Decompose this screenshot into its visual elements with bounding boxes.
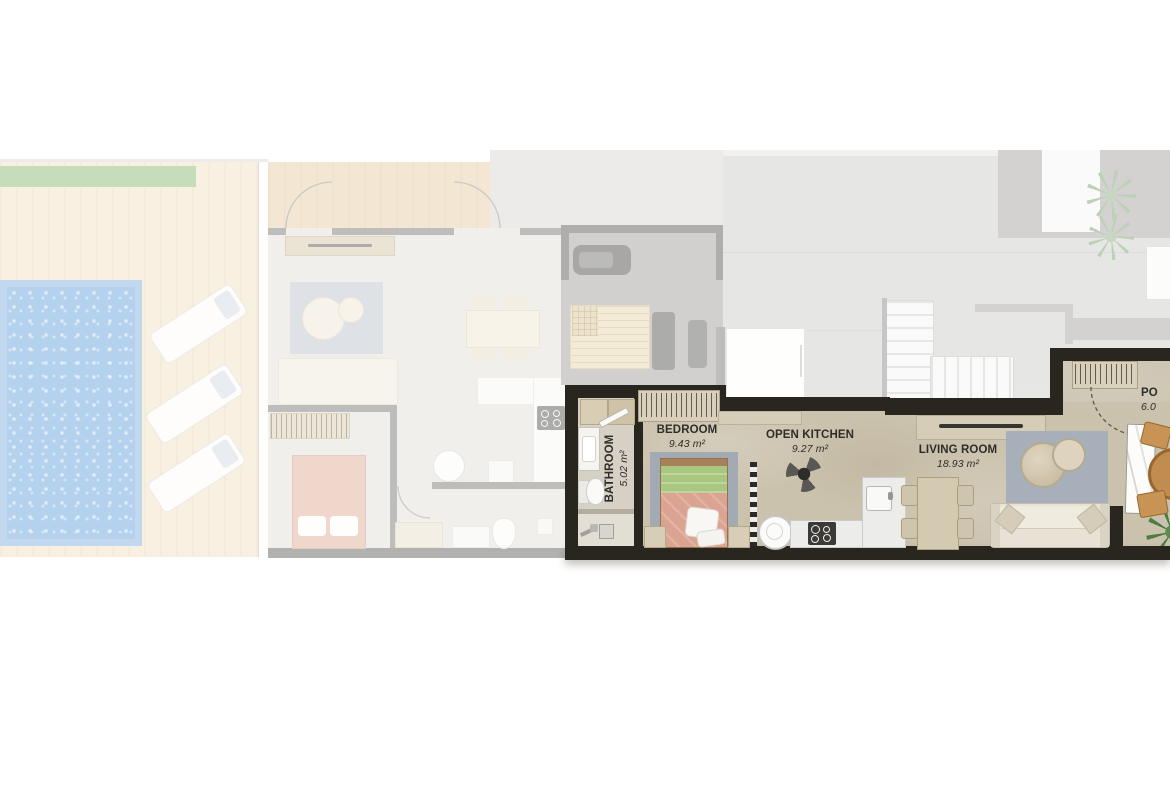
neighbor-wall: [432, 482, 565, 489]
neighbor-wardrobe-symbol: [270, 413, 350, 439]
gym-machine-symbol: [688, 320, 707, 368]
elevator-shaft: [725, 327, 806, 399]
neighbor-chair-symbol: [473, 296, 495, 308]
window-panel: [1146, 246, 1170, 300]
porch-name: PO: [1141, 387, 1170, 401]
chair-symbol: [901, 518, 918, 539]
elevator-door-line: [800, 345, 802, 377]
hanging-clothes: [641, 393, 677, 417]
hanging-clothes: [1075, 364, 1103, 384]
bathroom-area: 5.02 m²: [618, 421, 631, 516]
neighbor-vanity-symbol: [452, 526, 490, 548]
partition-marker: [750, 462, 757, 546]
lounger-pillow: [209, 369, 238, 400]
neighbor-cabinet-symbol: [395, 522, 443, 548]
headboard: [661, 459, 727, 466]
wardrobe-symbol: [638, 390, 720, 422]
kitchen-name: OPEN KITCHEN: [740, 429, 880, 443]
burner: [823, 526, 830, 533]
door-swing-arc: [452, 180, 502, 230]
living-name: LIVING ROOM: [898, 444, 1018, 458]
neighbor-dining-table-symbol: [466, 310, 540, 348]
palm-plant-icon: [1086, 170, 1136, 220]
burner: [811, 535, 819, 543]
burner: [811, 525, 820, 534]
bedroom-name: BEDROOM: [632, 424, 742, 438]
floor-plan: BATHROOM 5.02 m² BEDROOM 9.43 m² OPEN KI…: [0, 0, 1170, 785]
ceiling-fan-icon: [786, 456, 822, 492]
pillow: [330, 516, 358, 536]
burner: [541, 420, 548, 427]
door-swing-arc: [396, 484, 432, 520]
neighbor-wall: [268, 405, 390, 412]
neighbor-coffee-table-symbol: [338, 297, 364, 323]
exterior-wall: [1050, 348, 1170, 361]
burner: [553, 410, 560, 417]
exterior-wall: [885, 398, 1063, 415]
washer-symbol: [758, 515, 793, 550]
staircase-flight: [886, 300, 934, 404]
chair-symbol: [957, 485, 974, 506]
sauna-bench: [572, 306, 598, 336]
stair-wall: [882, 298, 887, 402]
chair-symbol: [901, 485, 918, 506]
bathroom-name: BATHROOM: [604, 421, 618, 516]
lounger-pillow: [213, 289, 242, 320]
swimming-pool-water: [7, 287, 135, 539]
stair-wall: [975, 304, 1067, 312]
neighbor-wall: [332, 228, 454, 235]
shower-drain-symbol: [599, 524, 614, 539]
common-corridor-floor: [490, 150, 723, 228]
upper-unit-wall: [1072, 318, 1170, 340]
living-area: 18.93 m²: [898, 458, 1018, 471]
room-label-living: LIVING ROOM 18.93 m²: [898, 444, 1018, 470]
shower-head-symbol: [590, 524, 598, 532]
grass-strip: [0, 166, 196, 187]
pillow: [298, 516, 326, 536]
dining-table-symbol: [917, 477, 959, 550]
faucet: [888, 492, 893, 500]
neighbor-bottom-wall: [268, 548, 565, 558]
bedroom-area: 9.43 m²: [632, 438, 742, 451]
neighbor-tv-screen: [308, 244, 372, 247]
neighbor-fixture: [537, 518, 553, 535]
shelf-symbol: [718, 411, 802, 425]
treadmill-belt: [579, 252, 613, 268]
neighbor-sofa-symbol: [278, 358, 398, 405]
exterior-wall: [565, 546, 1170, 560]
gym-treadmill-symbol: [573, 245, 631, 275]
porch-area: 6.0: [1141, 401, 1170, 414]
burner: [553, 419, 561, 427]
cooktop-symbol: [808, 522, 836, 545]
neighbor-chair-symbol: [473, 348, 495, 360]
neighbor-wall: [520, 228, 565, 235]
neighbor-washer-symbol: [433, 450, 465, 482]
burner: [823, 534, 831, 542]
gym-wall: [561, 225, 723, 233]
chair-symbol: [957, 518, 974, 539]
burner: [541, 410, 549, 418]
neighbor-tv-console-symbol: [285, 236, 395, 256]
sofa-symbol: [990, 503, 1110, 548]
exterior-wall: [713, 397, 890, 411]
kitchen-area: 9.27 m²: [740, 443, 880, 456]
neighbor-chair-symbol: [505, 296, 527, 308]
nightstand-symbol: [644, 526, 666, 548]
coffee-table-symbol: [1052, 438, 1086, 472]
gym-wall: [716, 225, 723, 280]
nightstand-symbol: [728, 526, 750, 548]
gym-machine-symbol: [652, 312, 675, 370]
gym-wall: [561, 225, 569, 280]
room-label-porch: PO 6.0: [1141, 387, 1170, 413]
room-label-kitchen: OPEN KITCHEN 9.27 m²: [740, 429, 880, 455]
hanging-clothes: [681, 393, 717, 417]
bed-throw: [661, 466, 727, 493]
tv-screen: [939, 424, 1023, 428]
staircase-flight: [930, 356, 1014, 404]
palm-plant-icon: [1088, 214, 1134, 260]
lounger-pillow: [211, 438, 240, 469]
neighbor-cooktop-symbol: [537, 406, 565, 430]
neighbor-chair-symbol: [505, 348, 527, 360]
outdoor-chair-symbol: [1136, 490, 1169, 519]
neighbor-bed-symbol: [292, 455, 366, 549]
washer-drum: [766, 523, 783, 540]
door-swing-arc: [284, 180, 334, 230]
sofa-arm: [991, 504, 1000, 547]
hanging-clothes: [1106, 364, 1134, 384]
wall-stub: [1108, 506, 1123, 550]
room-label-bedroom: BEDROOM 9.43 m²: [632, 424, 742, 450]
